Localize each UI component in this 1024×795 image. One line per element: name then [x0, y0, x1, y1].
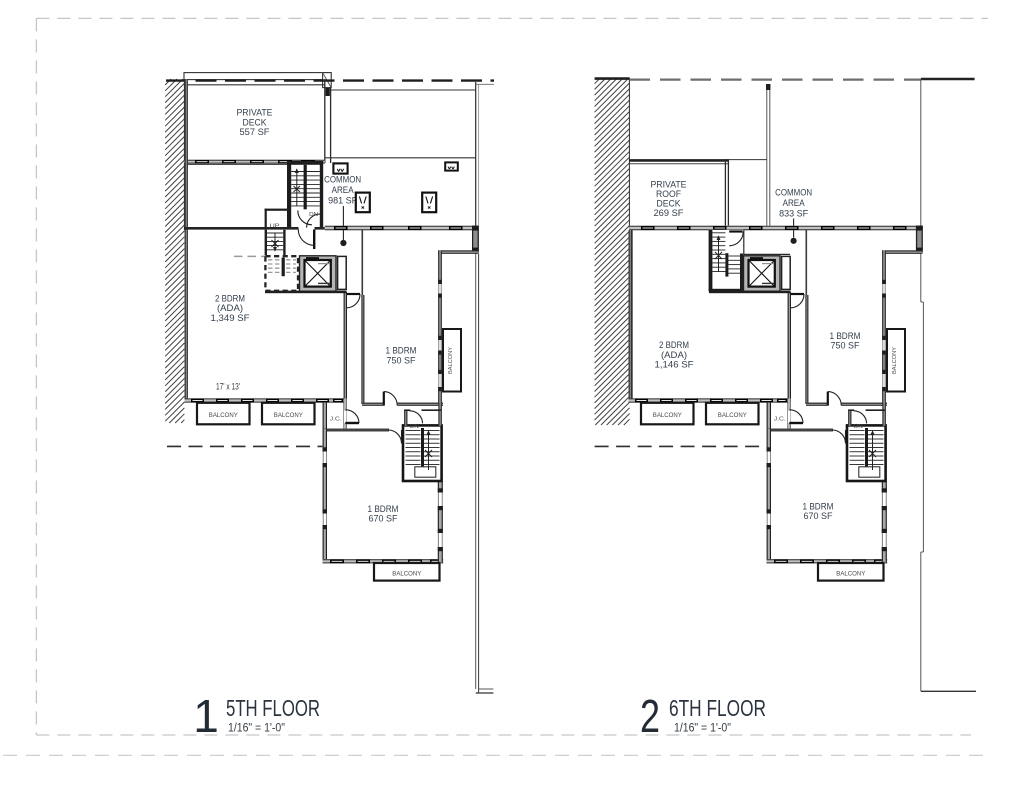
- svg-text:1,349 SF: 1,349 SF: [211, 313, 250, 323]
- svg-text:2: 2: [640, 690, 660, 742]
- svg-text:670 SF: 670 SF: [369, 514, 398, 524]
- svg-text:DN: DN: [854, 424, 863, 430]
- svg-text:670 SF: 670 SF: [804, 511, 833, 521]
- svg-text:17' x 13': 17' x 13': [216, 381, 240, 391]
- svg-text:BALCONY: BALCONY: [653, 412, 682, 419]
- svg-text:ROOF: ROOF: [656, 189, 681, 199]
- svg-text:BALCONY: BALCONY: [718, 412, 747, 419]
- svg-text:AREA: AREA: [332, 185, 355, 195]
- svg-text:AREA: AREA: [783, 198, 806, 208]
- svg-text:DN: DN: [410, 424, 419, 430]
- svg-text:BALCONY: BALCONY: [448, 347, 454, 374]
- svg-text:1 BDRM: 1 BDRM: [830, 331, 861, 341]
- svg-text:981 SF: 981 SF: [328, 195, 357, 205]
- svg-text:J.C.: J.C.: [330, 417, 343, 423]
- svg-text:J.C.: J.C.: [774, 417, 787, 423]
- svg-text:269 SF: 269 SF: [654, 208, 684, 218]
- svg-text:BALCONY: BALCONY: [392, 570, 421, 577]
- svg-text:PRIVATE: PRIVATE: [651, 179, 687, 189]
- svg-text:5TH FLOOR: 5TH FLOOR: [226, 695, 320, 721]
- svg-text:1,146 SF: 1,146 SF: [655, 360, 694, 370]
- svg-text:750 SF: 750 SF: [387, 355, 416, 365]
- svg-text:750 SF: 750 SF: [831, 341, 860, 351]
- svg-text:DECK: DECK: [243, 117, 268, 127]
- svg-text:1/16" = 1'-0": 1/16" = 1'-0": [228, 721, 285, 735]
- svg-text:DECK: DECK: [657, 198, 682, 208]
- svg-text:1 BDRM: 1 BDRM: [386, 346, 417, 356]
- svg-text:2 BDRM: 2 BDRM: [659, 340, 689, 350]
- svg-text:PRIVATE: PRIVATE: [237, 108, 273, 118]
- svg-text:(ADA): (ADA): [217, 303, 243, 313]
- svg-text:6TH FLOOR: 6TH FLOOR: [669, 695, 766, 721]
- svg-text:BALCONY: BALCONY: [209, 412, 238, 419]
- svg-text:COMMON: COMMON: [775, 187, 812, 197]
- svg-text:833 SF: 833 SF: [779, 208, 808, 218]
- svg-text:BALCONY: BALCONY: [892, 347, 898, 374]
- svg-text:2 BDRM: 2 BDRM: [215, 294, 245, 304]
- svg-text:557 SF: 557 SF: [240, 127, 270, 137]
- svg-text:BALCONY: BALCONY: [836, 570, 865, 577]
- svg-text:1/16" = 1'-0": 1/16" = 1'-0": [674, 721, 731, 735]
- svg-text:1: 1: [193, 690, 219, 742]
- svg-text:BALCONY: BALCONY: [274, 412, 303, 419]
- svg-text:COMMON: COMMON: [324, 174, 361, 184]
- svg-text:1 BDRM: 1 BDRM: [368, 504, 399, 514]
- svg-text:(ADA): (ADA): [661, 350, 687, 360]
- svg-text:1 BDRM: 1 BDRM: [803, 501, 834, 511]
